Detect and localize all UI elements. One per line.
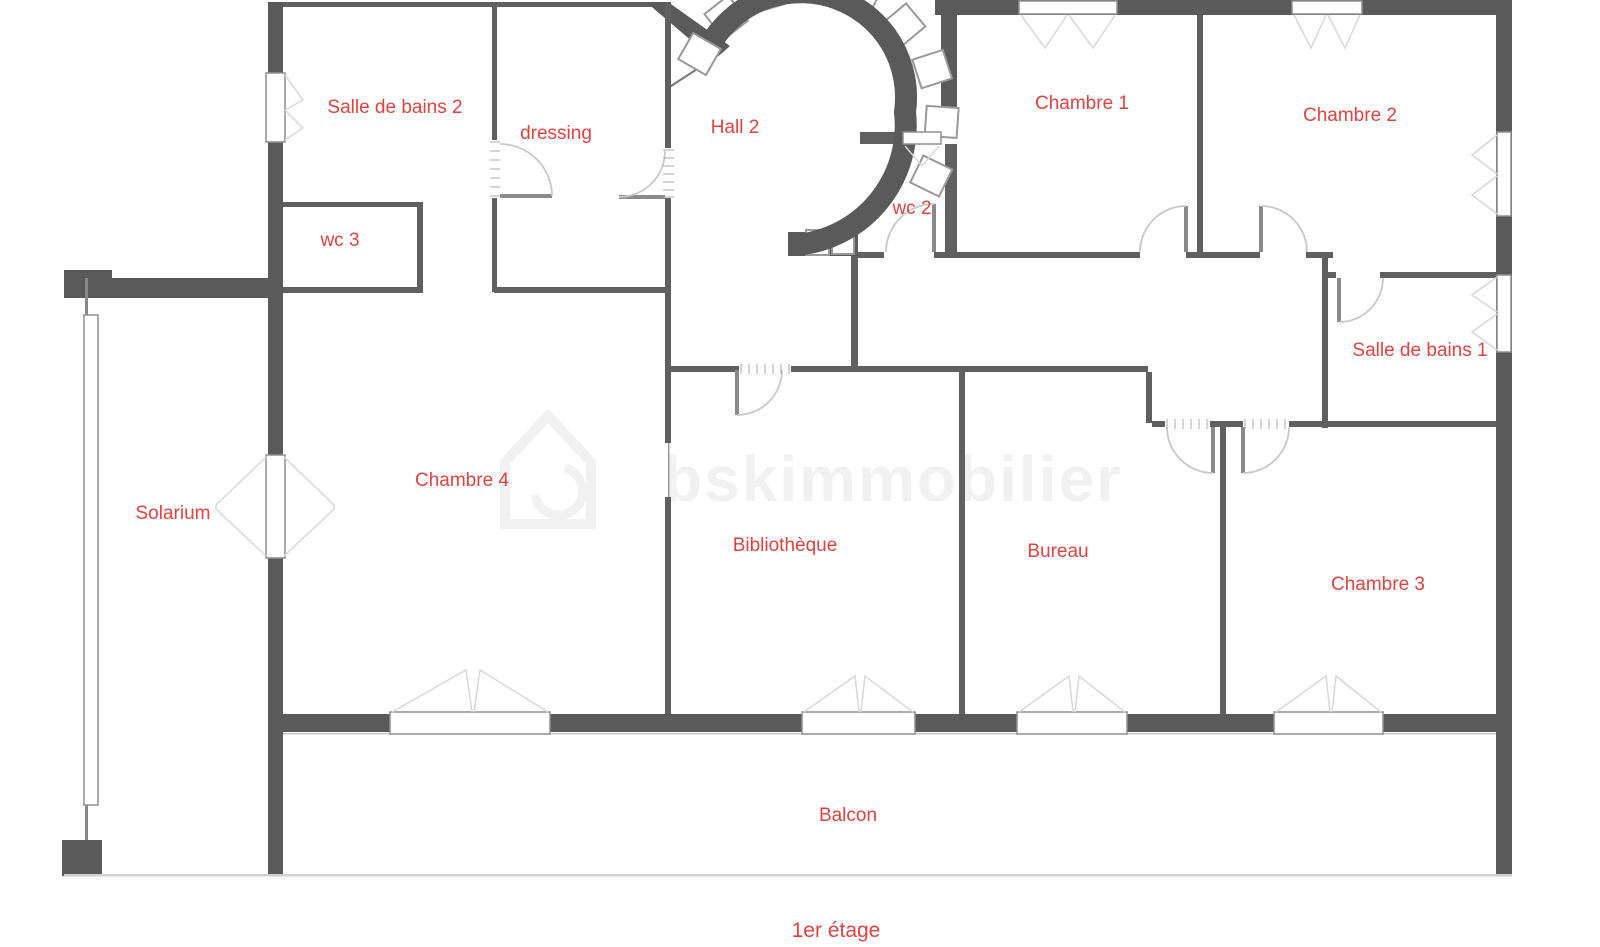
room-label-salle-de-bains-1: Salle de bains 1 xyxy=(1352,340,1487,361)
room-label-chambre-3: Chambre 3 xyxy=(1331,574,1425,595)
room-label-bureau: Bureau xyxy=(1027,541,1088,562)
room-label-bibliotheque: Bibliothèque xyxy=(733,535,838,556)
room-label-salle-de-bains-2: Salle de bains 2 xyxy=(327,97,462,118)
room-label-wc-2: wc 2 xyxy=(891,198,931,219)
floor-plan-drawing: bskimmobilier xyxy=(0,0,1600,947)
floor-plan-page: bskimmobilier xyxy=(0,0,1600,947)
watermark-text: bskimmobilier xyxy=(663,443,1123,515)
room-label-dressing: dressing xyxy=(520,123,592,144)
room-label-wc-3: wc 3 xyxy=(319,230,359,251)
hatch-sdb2-dressing xyxy=(490,142,500,196)
hatch-chambre3-door xyxy=(1245,419,1285,429)
hatch-bureau-door xyxy=(1167,419,1207,429)
room-label-chambre-1: Chambre 1 xyxy=(1035,93,1129,114)
windows xyxy=(84,1,1511,805)
room-label-chambre-4: Chambre 4 xyxy=(415,470,509,491)
floor-title: 1er étage xyxy=(792,919,881,942)
room-label-solarium: Solarium xyxy=(136,503,211,524)
watermark-logo-icon xyxy=(505,416,591,524)
room-label-hall-2: Hall 2 xyxy=(711,117,760,138)
room-label-chambre-2: Chambre 2 xyxy=(1303,105,1397,126)
room-label-balcon: Balcon xyxy=(819,805,877,826)
